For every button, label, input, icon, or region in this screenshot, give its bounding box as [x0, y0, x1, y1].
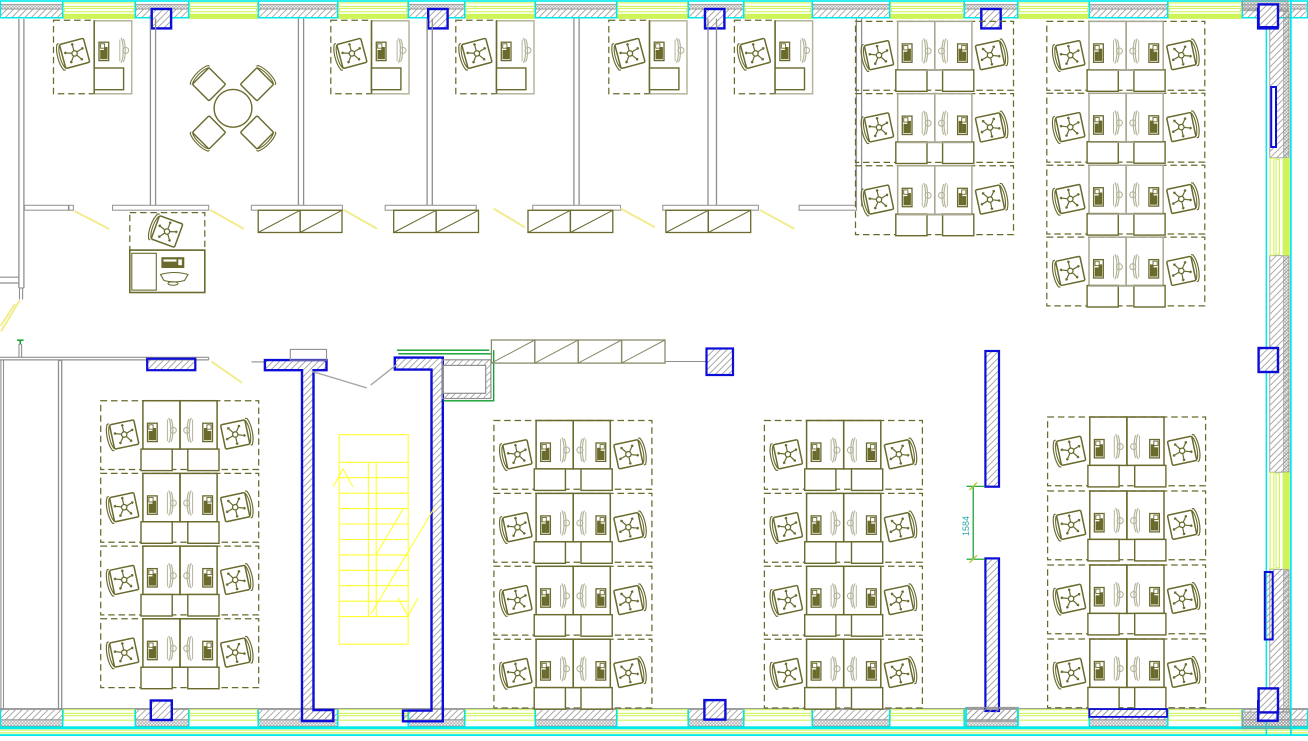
svg-text:1584: 1584 [961, 516, 971, 536]
